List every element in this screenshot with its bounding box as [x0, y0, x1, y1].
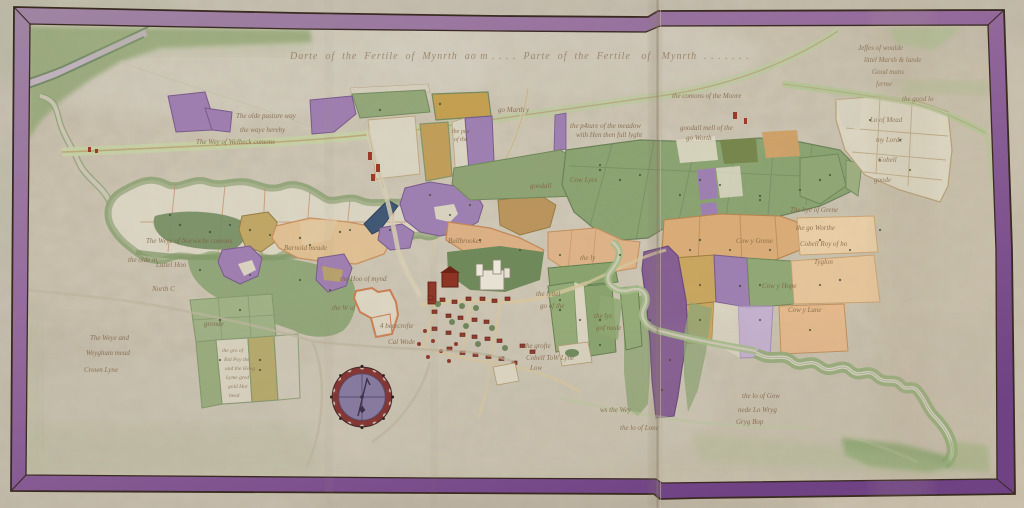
svg-text:Cobell Roy of ho: Cobell Roy of ho	[800, 240, 848, 248]
svg-text:go Marth y: go Marth y	[498, 106, 530, 114]
svg-text:gronde: gronde	[204, 320, 224, 328]
svg-text:The Weye of Norwiche comons: The Weye of Norwiche comons	[146, 237, 232, 245]
svg-text:the ly: the ly	[580, 254, 596, 262]
svg-text:North C: North C	[151, 285, 175, 293]
svg-text:the waye hereby: the waye hereby	[240, 126, 286, 134]
svg-text:the grofte: the grofte	[524, 342, 551, 350]
svg-text:the p4ture of the meadow: the p4ture of the meadow	[570, 122, 641, 130]
svg-text:Darte of the Fertile of M: Darte of the Fertile of Mynrth ao m . . …	[289, 51, 750, 62]
svg-text:ws the Wey: ws the Wey	[600, 406, 632, 414]
svg-text:Gryg Bop: Gryg Bop	[736, 418, 764, 426]
svg-text:Cow Lyes: Cow Lyes	[570, 176, 597, 184]
svg-text:nede Lo Wryg: nede Lo Wryg	[738, 406, 777, 414]
svg-text:Cobell ToW Lyne: Cobell ToW Lyne	[526, 354, 574, 362]
svg-text:the Hoo of mynd: the Hoo of mynd	[340, 275, 387, 283]
svg-text:with Hen then full lyght: with Hen then full lyght	[576, 131, 643, 139]
svg-text:Barnold meade: Barnold meade	[284, 244, 327, 252]
svg-text:gof mede: gof mede	[596, 324, 621, 332]
svg-text:the lye: the lye	[594, 312, 612, 320]
svg-text:go of the: go of the	[540, 302, 565, 310]
svg-text:4 berecrofte: 4 berecrofte	[380, 322, 414, 330]
svg-text:the W of: the W of	[332, 304, 356, 312]
svg-text:The olde pasture way: The olde pasture way	[236, 112, 297, 120]
svg-text:of the: of the	[454, 136, 468, 143]
svg-text:The hye of Grene: The hye of Grene	[790, 206, 838, 214]
svg-text:goodall: goodall	[530, 182, 551, 190]
svg-text:Weyghum mead: Weyghum mead	[86, 349, 130, 357]
svg-text:the lo of Gow: the lo of Gow	[742, 392, 780, 400]
svg-text:the olde m: the olde m	[128, 256, 157, 264]
svg-text:The Wey of Welbeck comons: The Wey of Welbeck comons	[196, 138, 275, 146]
svg-text:Cal Wode: Cal Wode	[388, 338, 415, 346]
svg-text:Cow y Grene: Cow y Grene	[736, 237, 773, 245]
svg-text:Low: Low	[529, 364, 542, 372]
svg-text:goodall mell of the: goodall mell of the	[680, 124, 733, 132]
svg-text:The Weye and: The Weye and	[90, 334, 130, 342]
svg-text:the poz: the poz	[452, 129, 470, 135]
svg-text:the lyttel: the lyttel	[536, 290, 560, 298]
svg-text:Cow y Lane: Cow y Lane	[788, 306, 821, 314]
svg-text:the comons of the Moore: the comons of the Moore	[672, 92, 741, 100]
svg-text:Luttel Hoo: Luttel Hoo	[155, 261, 187, 269]
svg-text:Bullbrookes: Bullbrookes	[448, 237, 482, 245]
svg-text:Cow y Hope: Cow y Hope	[762, 282, 797, 290]
svg-text:Tyglon: Tyglon	[814, 258, 833, 266]
svg-text:the go Worthe: the go Worthe	[796, 224, 835, 232]
svg-text:Crown Lyne: Crown Lyne	[84, 366, 118, 374]
svg-text:go Worth: go Worth	[686, 134, 712, 142]
